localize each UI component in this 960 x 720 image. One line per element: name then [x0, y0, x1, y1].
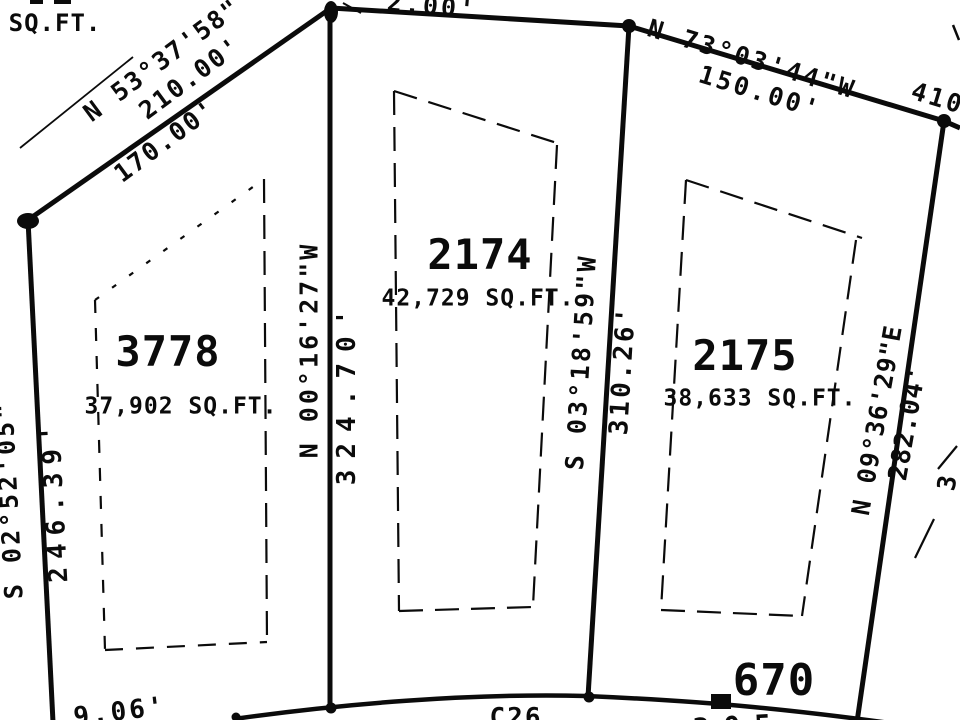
- monument-south-3: [232, 713, 241, 720]
- setback-3778-left: [95, 300, 105, 650]
- lot-area-2174: 42,729 SQ.FT.: [381, 288, 574, 311]
- corner-area-unit-fragment: SQ.FT.: [9, 11, 102, 35]
- setback-lines: [95, 91, 957, 650]
- edge-fragment-mark-ne: [953, 25, 959, 40]
- setback-2175-top: [686, 180, 862, 238]
- lot-number-2174: 2174: [427, 234, 532, 276]
- setback-2174-left: [394, 91, 399, 611]
- curve-label-c26: C26: [490, 705, 543, 720]
- bearing-lot3778-east: N 00°16'27"W: [297, 242, 322, 459]
- monument-south-1: [326, 703, 337, 714]
- distance-lot3778-east: 324.70': [334, 299, 360, 486]
- setback-2174-bottom: [399, 607, 533, 611]
- setback-2175-right: [802, 240, 856, 616]
- monument-south-2: [584, 692, 595, 703]
- lot-number-3778: 3778: [115, 331, 220, 373]
- setback-east-fragment-2: [915, 519, 934, 558]
- setback-2174-top: [394, 91, 557, 143]
- boundary-north-1: [331, 8, 629, 26]
- setback-2175-bottom: [661, 610, 802, 616]
- clipped-text-mark-2: [54, 0, 71, 4]
- distance-lot2174-east: 310.26': [606, 304, 640, 436]
- monument-north-mid: [622, 19, 636, 33]
- parcel-number-670: 670: [733, 659, 815, 703]
- lot-area-2175: 38,633 SQ.FT.: [663, 388, 856, 411]
- setback-3778-top: [95, 179, 264, 300]
- clipped-text-mark-1: [30, 0, 43, 4]
- lot-area-3778: 37,902 SQ.FT.: [84, 396, 277, 419]
- south-number-fragment: 305: [692, 711, 786, 720]
- setback-2174-right: [533, 145, 557, 606]
- setback-east-fragment-1: [938, 446, 957, 469]
- lot-number-2175: 2175: [692, 335, 797, 377]
- setback-3778-bottom: [105, 642, 267, 650]
- plat-survey-map: 3778 37,902 SQ.FT. 2174 42,729 SQ.FT. 21…: [0, 0, 960, 720]
- monument-north-peak: [324, 1, 338, 23]
- boundary-south-road-curve: [234, 696, 960, 720]
- monument-west-corner: [17, 213, 39, 229]
- square-marker-670: [711, 694, 731, 709]
